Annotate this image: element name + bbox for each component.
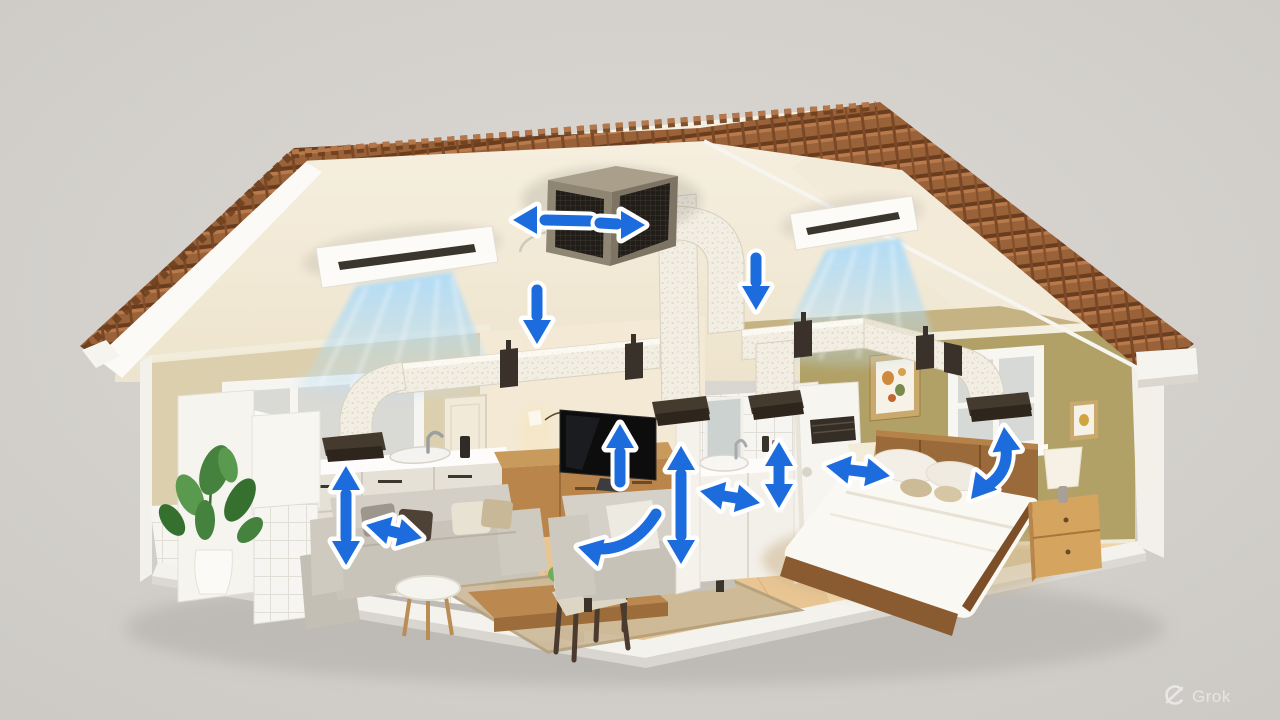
plant-pot — [195, 550, 233, 594]
watermark-label: Grok — [1192, 687, 1231, 706]
toiletry-bottle — [762, 436, 769, 452]
counter-bottle — [460, 436, 470, 458]
left-wall-cut-edge — [140, 356, 152, 582]
throw-pillow — [481, 499, 514, 530]
range-hood-column — [252, 411, 320, 514]
small-art-frame — [1070, 400, 1098, 441]
lamp-right — [1044, 447, 1082, 489]
hvac-house-cutaway-illustration: Grok — [0, 0, 1280, 720]
scene-canvas: Grok — [0, 0, 1280, 720]
